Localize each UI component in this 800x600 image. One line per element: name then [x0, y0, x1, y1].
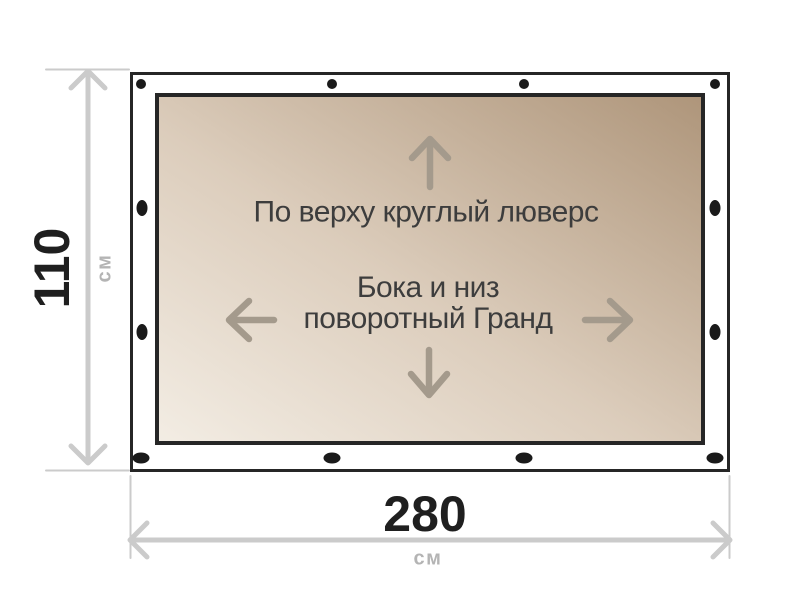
- tarp-diagram: 110 см По верху круглый люверс Бока и ни…: [0, 0, 800, 600]
- grommet-icon: [710, 79, 720, 89]
- top-edge-note: По верху круглый люверс: [254, 197, 599, 228]
- center-note: Бока и низ поворотный Гранд: [304, 272, 553, 334]
- width-unit-label: см: [414, 548, 443, 571]
- grommet-icon: [137, 200, 148, 216]
- grommet-icon: [136, 79, 146, 89]
- grommet-icon: [707, 453, 724, 464]
- grommet-icon: [137, 324, 148, 340]
- grommet-icon: [327, 79, 337, 89]
- grommet-icon: [516, 453, 533, 464]
- grommet-icon: [519, 79, 529, 89]
- center-note-line1: Бока и низ: [304, 272, 553, 303]
- grommet-icon: [710, 324, 721, 340]
- grommet-icon: [324, 453, 341, 464]
- grommet-icon: [710, 200, 721, 216]
- center-note-line2: поворотный Гранд: [304, 303, 553, 334]
- width-value-label: 280: [383, 485, 466, 543]
- grommet-icon: [133, 453, 150, 464]
- height-value-label: 110: [23, 228, 81, 309]
- height-unit-label: см: [94, 254, 117, 283]
